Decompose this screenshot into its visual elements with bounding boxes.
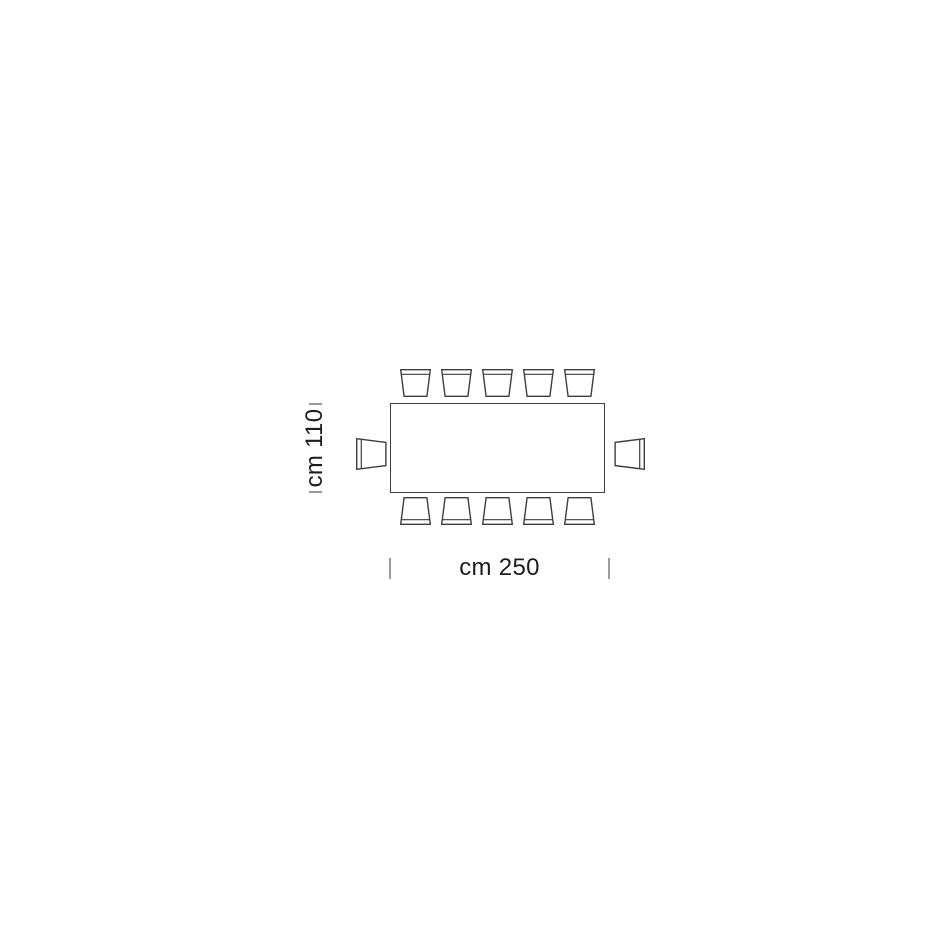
dimension-depth-label: cm 110 bbox=[302, 409, 328, 488]
diagram-canvas: cm 110 cm 250 bbox=[0, 0, 950, 950]
chair-icon bbox=[564, 369, 595, 397]
chair-right bbox=[614, 438, 645, 470]
chair-slot-right bbox=[614, 438, 645, 470]
chair-outline bbox=[401, 498, 431, 525]
table-top bbox=[390, 403, 605, 493]
chair-row-bottom bbox=[400, 497, 595, 525]
chair-icon bbox=[482, 369, 513, 397]
chair-icon bbox=[400, 497, 431, 525]
chair-outline bbox=[524, 370, 554, 397]
chair-bottom-3 bbox=[482, 497, 513, 525]
chair-icon bbox=[441, 369, 472, 397]
chair-bottom-5 bbox=[564, 497, 595, 525]
chair-top-3 bbox=[482, 369, 513, 397]
chair-slot-left bbox=[356, 438, 387, 470]
chair-bottom-1 bbox=[400, 497, 431, 525]
dimension-width-label: cm 250 bbox=[459, 555, 540, 581]
chair-bottom-4 bbox=[523, 497, 554, 525]
chair-icon bbox=[564, 497, 595, 525]
chair-icon bbox=[482, 497, 513, 525]
chair-top-1 bbox=[400, 369, 431, 397]
dimension-tick bbox=[389, 558, 391, 579]
dimension-tick bbox=[309, 403, 322, 405]
chair-outline bbox=[483, 498, 513, 525]
chair-outline bbox=[442, 370, 472, 397]
chair-outline bbox=[565, 498, 595, 525]
chair-top-2 bbox=[441, 369, 472, 397]
dimension-tick bbox=[309, 491, 322, 493]
dimension-tick bbox=[608, 558, 610, 579]
chair-left bbox=[356, 438, 387, 470]
chair-outline bbox=[565, 370, 595, 397]
chair-bottom-2 bbox=[441, 497, 472, 525]
chair-icon bbox=[523, 369, 554, 397]
chair-outline bbox=[483, 370, 513, 397]
chair-icon bbox=[614, 438, 645, 470]
chair-icon bbox=[356, 438, 387, 470]
chair-outline bbox=[401, 370, 431, 397]
chair-outline bbox=[442, 498, 472, 525]
chair-outline bbox=[524, 498, 554, 525]
dimension-width: cm 250 bbox=[389, 556, 610, 580]
chair-top-4 bbox=[523, 369, 554, 397]
dimension-depth: cm 110 bbox=[302, 403, 328, 493]
chair-icon bbox=[400, 369, 431, 397]
chair-row-top bbox=[400, 369, 595, 397]
chair-top-5 bbox=[564, 369, 595, 397]
chair-icon bbox=[441, 497, 472, 525]
chair-icon bbox=[523, 497, 554, 525]
